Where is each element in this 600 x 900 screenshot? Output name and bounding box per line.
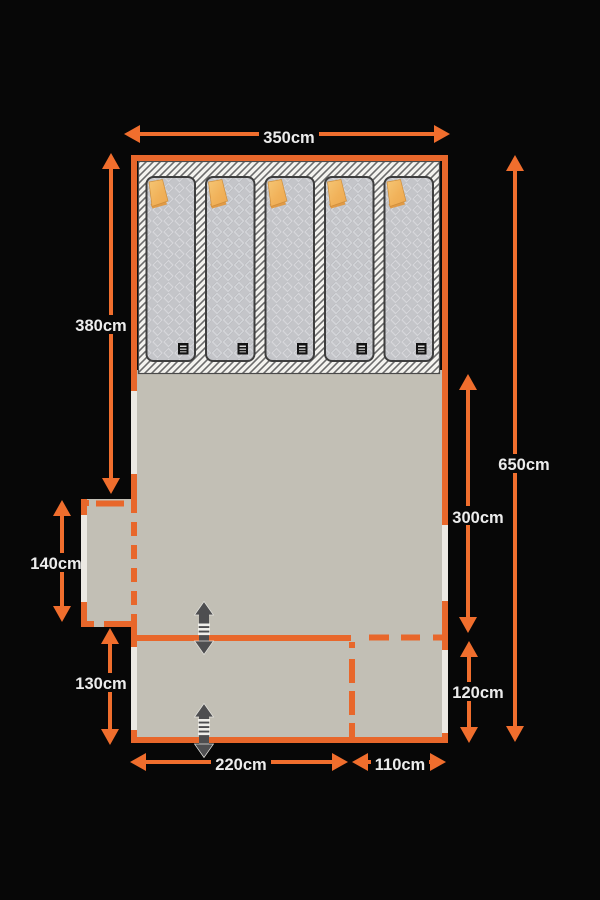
svg-text:140cm: 140cm — [30, 555, 81, 573]
svg-text:120cm: 120cm — [452, 684, 503, 702]
svg-text:380cm: 380cm — [75, 317, 126, 335]
svg-text:300cm: 300cm — [452, 509, 503, 527]
svg-text:220cm: 220cm — [215, 756, 266, 774]
svg-text:650cm: 650cm — [498, 456, 549, 474]
svg-text:110cm: 110cm — [375, 756, 425, 774]
svg-text:130cm: 130cm — [75, 675, 126, 693]
svg-text:350cm: 350cm — [263, 129, 314, 147]
